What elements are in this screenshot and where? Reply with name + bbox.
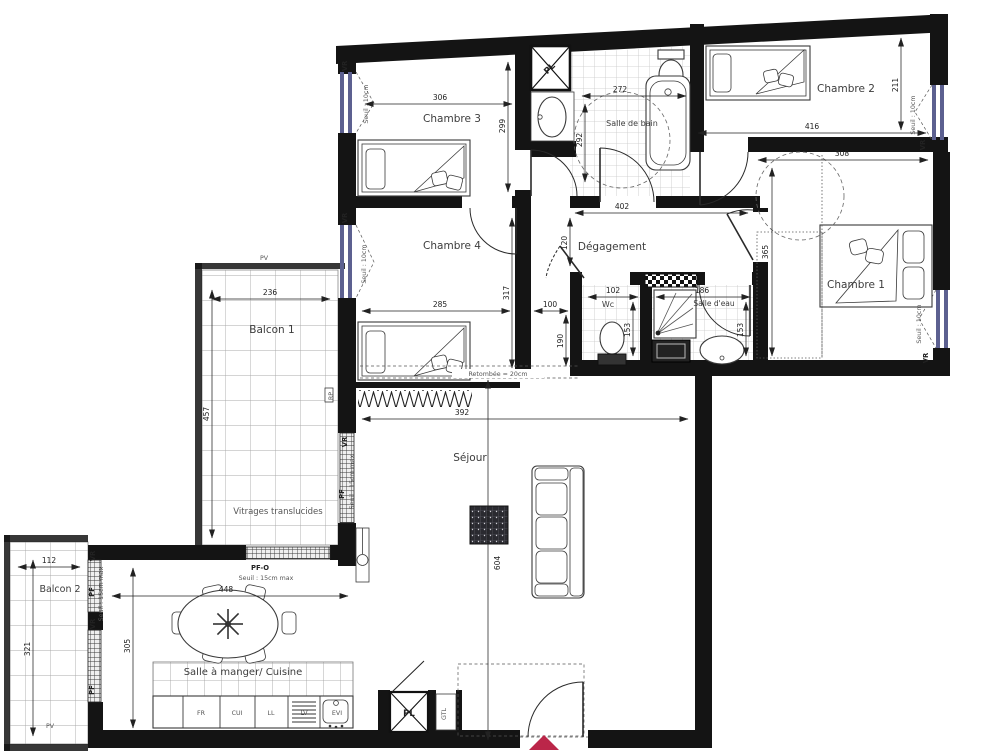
- rp-label: RP: [328, 392, 335, 400]
- window-chambre4: [340, 225, 374, 298]
- kitchen-counter: [153, 696, 353, 728]
- pf-kitchen-2: PF: [88, 685, 96, 695]
- seuil15-kitchen: Seuil : 15cm max: [98, 566, 105, 621]
- balcony-2-rail-bottom: [4, 744, 88, 751]
- room-label-chambre1: Chambre 1: [827, 279, 885, 291]
- pf-kitchen-1: PF: [88, 587, 96, 597]
- kitchen-evi: EVI: [332, 710, 342, 717]
- kitchen-ll: LL: [267, 710, 275, 717]
- kitchen-lv: LV: [300, 710, 308, 717]
- vitrages-label: Vitrages translucides: [233, 507, 323, 517]
- sofa: [532, 466, 584, 598]
- dim-se-w: 186: [695, 286, 710, 295]
- window-chambre2: [915, 85, 944, 140]
- balcony-1-rail-left: [195, 263, 202, 545]
- closet-pl-bottom: [390, 661, 428, 732]
- window-kitchen-top: [246, 547, 330, 559]
- dim-balc2-h: 321: [23, 642, 32, 657]
- dim-cui-w: 448: [219, 585, 234, 594]
- dim-pass-w: 100: [543, 300, 558, 309]
- vr-kitchen-1: VR: [89, 550, 97, 561]
- room-label-sejour: Séjour: [453, 452, 487, 464]
- washbasin-se: [700, 336, 744, 364]
- balcony-1-rail-top: [195, 263, 345, 269]
- floor-plan: 306 299 272 292 211 416 308 365 402 120 …: [0, 0, 986, 751]
- seuil15-sejour: Seuil : 15cm max: [349, 454, 356, 509]
- balcony-2-rail-left: [4, 535, 10, 751]
- seuil10-ch1: Seuil : 10cm: [916, 304, 923, 343]
- dim-se-h: 153: [736, 323, 745, 338]
- retombee-label: Retombée = 20cm: [468, 370, 527, 378]
- vr-ch3: VR: [341, 60, 349, 71]
- room-label-cuisine: Salle à manger/ Cuisine: [184, 666, 303, 678]
- seuil15-kitchen-top: Seuil : 15cm max: [239, 575, 294, 582]
- balcony-1-floor: [202, 270, 338, 545]
- vr-ch4: VR: [341, 212, 349, 223]
- bed-chambre2: [706, 46, 810, 100]
- bed-chambre1: [820, 225, 932, 307]
- dim-pass-h: 190: [556, 334, 565, 349]
- dim-ch1-h: 365: [761, 245, 770, 260]
- dim-ch2-h: 211: [891, 78, 900, 93]
- kitchen-fr: FR: [197, 710, 206, 717]
- balcony-2: [4, 535, 88, 751]
- dim-sej-h: 604: [493, 556, 502, 571]
- radiator-zigzag: [358, 390, 472, 407]
- door-chambre1: [727, 210, 753, 260]
- dim-balc1-h: 457: [202, 407, 211, 422]
- vr-sejour: VR: [341, 436, 349, 447]
- bed-chambre3: [358, 140, 470, 196]
- room-label-salle-eau: Salle d'eau: [693, 299, 735, 308]
- dim-wc-w: 102: [606, 286, 621, 295]
- balcony-2-floor: [10, 542, 88, 744]
- pl-bottom-label: PL: [403, 709, 415, 719]
- dim-ch2-w: 416: [805, 122, 820, 131]
- radiator-sejour: [356, 528, 369, 582]
- dim-balc2-w: 112: [42, 556, 57, 565]
- dim-sdb-w: 272: [613, 85, 628, 94]
- dim-ch4-w: 285: [433, 300, 448, 309]
- floor-plan-svg: 306 299 272 292 211 416 308 365 402 120 …: [0, 0, 986, 751]
- dim-sej-w: 392: [455, 408, 470, 417]
- toilet-wc: [598, 322, 626, 365]
- stove-square: [470, 506, 508, 544]
- room-label-balcon2: Balcon 2: [39, 584, 80, 595]
- seuil10-ch3: Seuil : 10cm: [363, 84, 370, 123]
- vr-ch1: VR: [922, 352, 930, 363]
- gtl-label: GTL: [441, 708, 448, 721]
- dim-deg-h: 120: [560, 236, 569, 251]
- room-label-balcon1: Balcon 1: [249, 324, 294, 336]
- balcony-2-rail-top: [4, 535, 88, 542]
- pf-sejour: PF: [338, 489, 346, 499]
- pfo-label: PF-O: [251, 564, 269, 572]
- dim-wc-h: 153: [623, 323, 632, 338]
- room-label-wc: Wc: [602, 300, 614, 309]
- pv-label-balcon2: PV: [46, 723, 55, 730]
- balcony-1: [195, 263, 345, 545]
- room-label-chambre3: Chambre 3: [423, 113, 481, 125]
- dim-deg-w: 402: [615, 202, 630, 211]
- door-entrance: [520, 682, 588, 737]
- pv-label-balcon1: PV: [260, 255, 269, 262]
- vr-kitchen-2: VR: [89, 618, 97, 629]
- kitchen-cui: CUI: [232, 710, 243, 717]
- dim-ch3-h: 299: [498, 119, 507, 134]
- room-label-degagement: Dégagement: [578, 241, 646, 253]
- seuil10-ch2: Seuil : 10cm: [910, 95, 917, 134]
- dim-ch3-w: 306: [433, 93, 448, 102]
- vr-ch2: VR: [919, 139, 927, 150]
- room-label-chambre2: Chambre 2: [817, 83, 875, 95]
- dim-sdb-h: 292: [575, 133, 584, 148]
- seuil10-ch4: Seuil : 10cm: [361, 244, 368, 283]
- washbasin-sdb: [531, 92, 574, 141]
- entry-soffit-dashed: [458, 664, 584, 736]
- room-label-salle-de-bain: Salle de bain: [606, 119, 658, 128]
- dim-cui-h: 305: [123, 639, 132, 654]
- room-label-chambre4: Chambre 4: [423, 240, 481, 252]
- dim-ch1-w: 308: [835, 149, 850, 158]
- dim-balc1-w: 236: [263, 288, 278, 297]
- dim-ch4-h: 317: [502, 286, 511, 301]
